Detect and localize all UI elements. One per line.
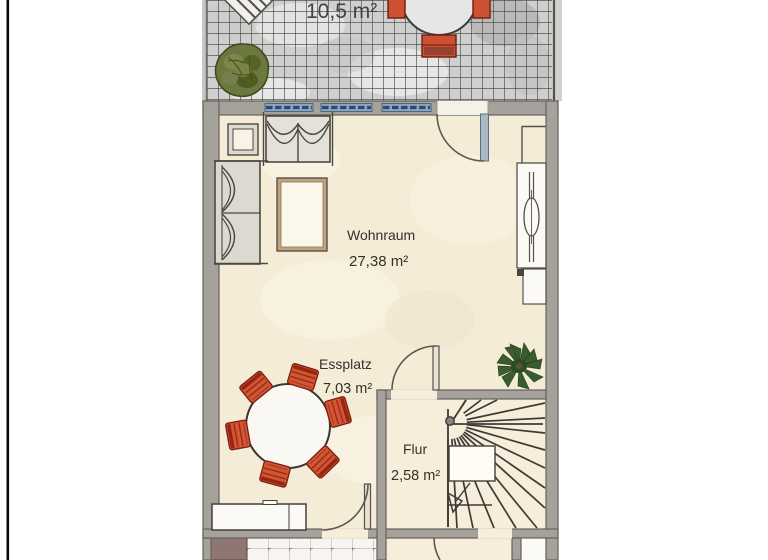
svg-text:27,38 m²: 27,38 m²: [349, 253, 408, 270]
svg-text:2,58 m²: 2,58 m²: [391, 468, 440, 484]
svg-text:Flur: Flur: [403, 441, 427, 457]
svg-text:Essplatz: Essplatz: [319, 356, 372, 372]
svg-text:7,03 m²: 7,03 m²: [323, 381, 372, 397]
svg-text:10,5 m²: 10,5 m²: [306, 0, 377, 23]
svg-text:Wohnraum: Wohnraum: [347, 227, 415, 243]
